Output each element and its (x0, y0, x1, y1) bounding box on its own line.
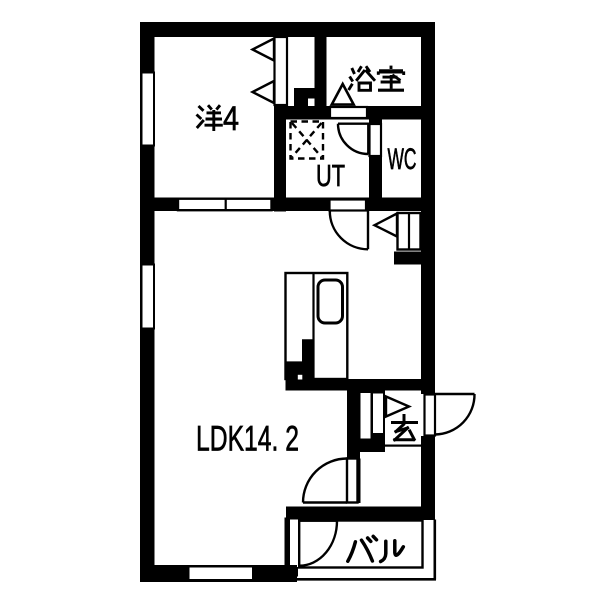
svg-text:WC: WC (388, 143, 417, 176)
svg-text:4: 4 (223, 100, 239, 138)
svg-text:LDK14. 2: LDK14. 2 (196, 420, 299, 459)
svg-text:UT: UT (316, 158, 345, 193)
